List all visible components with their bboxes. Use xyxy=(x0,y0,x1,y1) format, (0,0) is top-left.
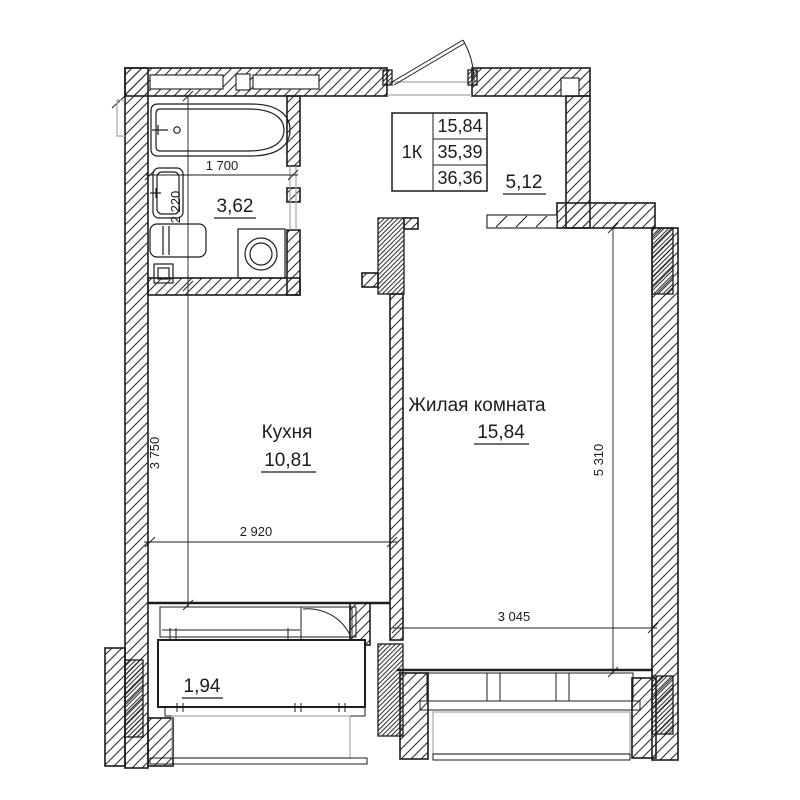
dim-bathtub-width-text: 1 700 xyxy=(206,158,239,173)
dim-living-depth-text: 5 310 xyxy=(591,444,606,477)
dim-kitchen-width-text: 2 920 xyxy=(240,524,273,539)
dim-living-width-text: 3 045 xyxy=(498,609,531,624)
balcony-area: 1,94 xyxy=(184,676,221,697)
summary-table: 1К 15,84 35,39 36,36 xyxy=(392,113,487,191)
floor-plan: 1 700 2 220 3 750 2 920 5 310 xyxy=(0,0,800,800)
summary-total-area: 36,36 xyxy=(437,168,482,188)
hallway-area: 5,12 xyxy=(506,172,543,193)
kitchen-name: Кухня xyxy=(262,422,313,443)
living-top-wall xyxy=(557,203,655,228)
living-room-name: Жилая комната xyxy=(408,395,546,416)
vent-slot xyxy=(150,75,223,89)
pier-tab xyxy=(362,273,378,287)
summary-type-label: 1К xyxy=(402,142,423,162)
pier-tab xyxy=(404,218,418,229)
summary-apartment-area: 35,39 xyxy=(437,142,482,162)
bathroom-area: 3,62 xyxy=(217,196,254,217)
summary-living-area: 15,84 xyxy=(437,116,482,136)
right-wall-dense xyxy=(652,228,673,294)
bathroom-right-wall xyxy=(287,96,300,166)
vent-slot xyxy=(253,75,319,89)
bottom-right-pier xyxy=(632,678,656,758)
bottom-left-pier-dense xyxy=(125,660,143,737)
bathroom-right-wall-stub xyxy=(287,188,300,202)
living-room-area: 15,84 xyxy=(477,422,525,443)
parapet-window xyxy=(487,215,557,228)
dim-bathroom-depth-text: 2 220 xyxy=(168,191,183,224)
kitchen-area: 10,81 xyxy=(264,450,312,471)
vent-divider xyxy=(236,74,250,90)
bathroom-bottom-wall xyxy=(148,278,300,295)
dim-kitchen-depth-text: 3 750 xyxy=(147,437,162,470)
pier xyxy=(378,218,404,294)
floor-plan-svg: 1 700 2 220 3 750 2 920 5 310 xyxy=(0,0,800,800)
kitchen-living-divider xyxy=(390,294,403,640)
bottom-middle-pier xyxy=(400,673,428,759)
bottom-left-pier xyxy=(105,648,125,766)
wall-notch xyxy=(561,78,579,96)
bottom-left-pier xyxy=(148,718,173,766)
bottom-middle-pier xyxy=(350,603,370,645)
